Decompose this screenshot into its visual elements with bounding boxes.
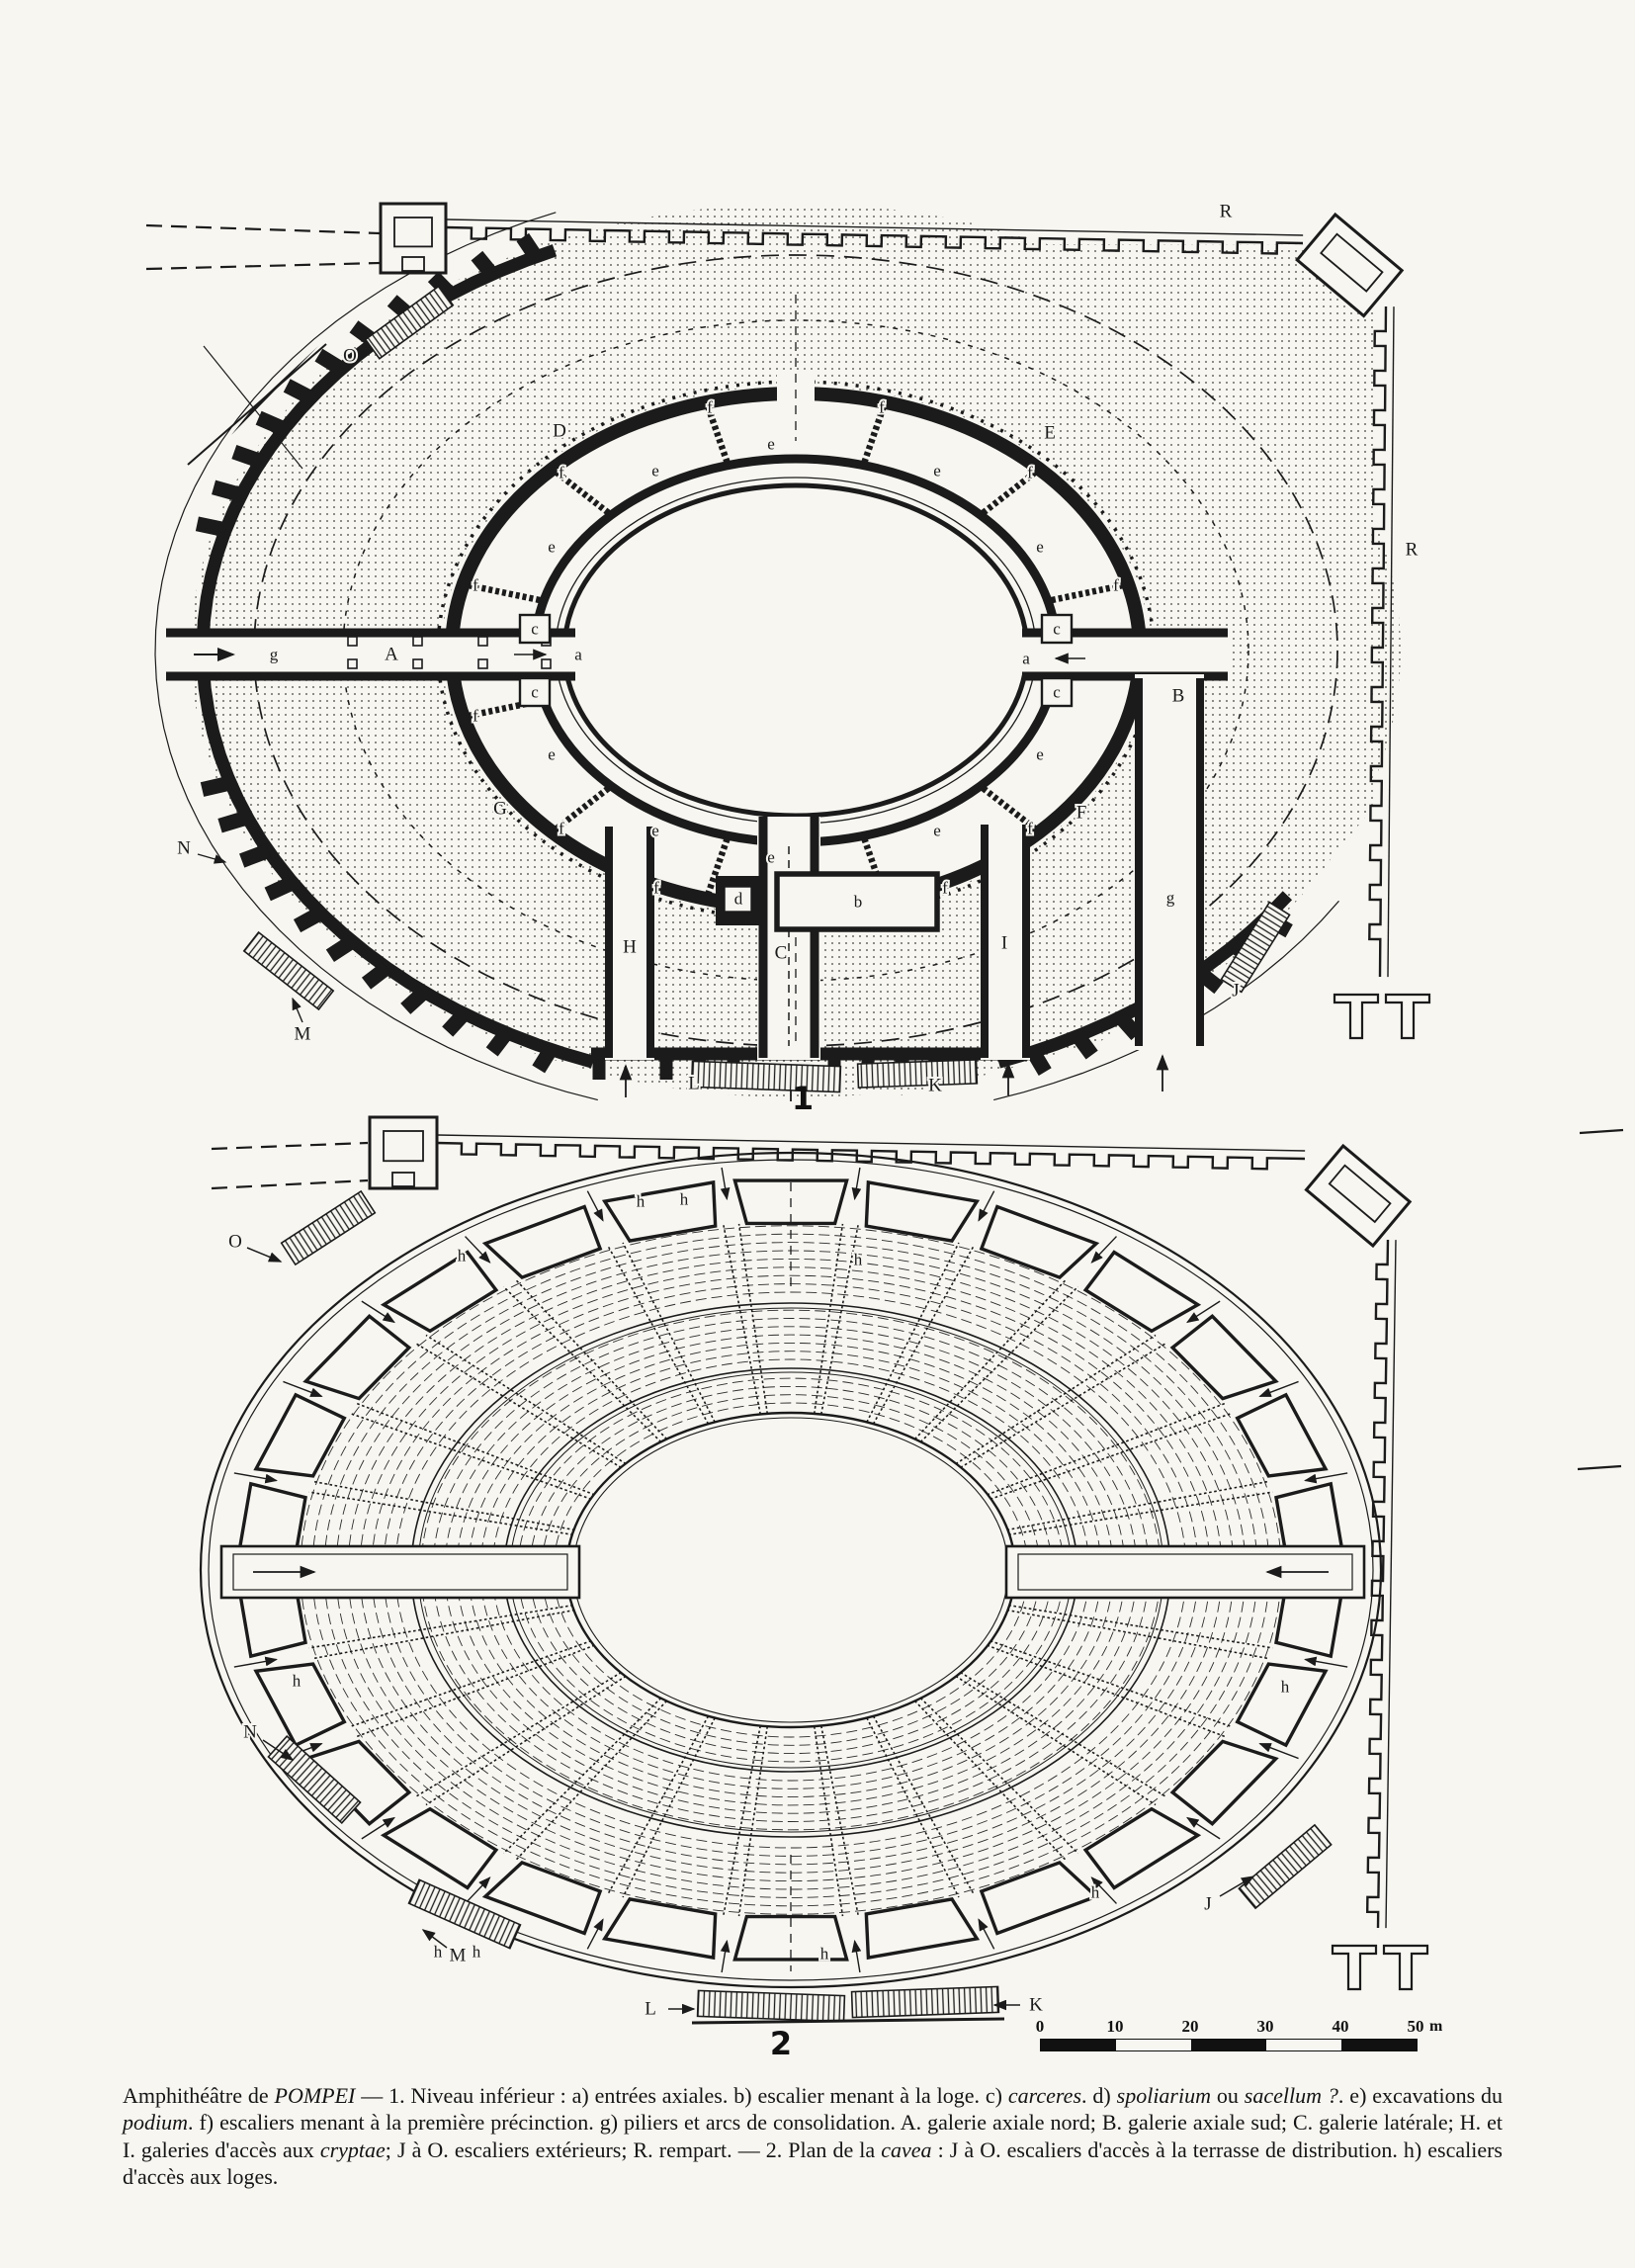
scale-tick: 50 bbox=[1408, 2017, 1424, 2037]
figure2-number: 2 bbox=[770, 2025, 792, 2062]
plan1-label-e: e bbox=[651, 822, 659, 840]
caption-segment: — 1. Niveau inférieur : a) entrées axial… bbox=[355, 2083, 1008, 2108]
caption-segment: carceres bbox=[1008, 2083, 1081, 2108]
plan1-label-f: f bbox=[1027, 820, 1033, 838]
plan1-label-O: O bbox=[343, 346, 357, 367]
plan2-label-O: O bbox=[228, 1232, 242, 1253]
plan1-label-e: e bbox=[548, 745, 556, 764]
plan1-label-K: K bbox=[928, 1076, 942, 1096]
caption-segment: ou bbox=[1211, 2083, 1245, 2108]
scale-bar: 0 10 20 30 40 50 m bbox=[1040, 2017, 1475, 2056]
plan1-label-e: e bbox=[933, 822, 941, 840]
plan1-label-A: A bbox=[385, 645, 398, 665]
plan1-label-B: B bbox=[1172, 686, 1185, 707]
caption: Amphithéâtre de POMPEI — 1. Niveau infér… bbox=[123, 2082, 1503, 2190]
plan1-label-e: e bbox=[651, 462, 659, 480]
plan2-label-h: h bbox=[473, 1943, 481, 1962]
plan1-label-f: f bbox=[1113, 576, 1119, 595]
scale-segment bbox=[1266, 2040, 1341, 2050]
plan1-label-L: L bbox=[688, 1074, 700, 1094]
caption-segment: . d) bbox=[1081, 2083, 1117, 2108]
plan2-label-h: h bbox=[637, 1192, 645, 1211]
plan1-label-J: J bbox=[1232, 981, 1239, 1002]
plan2-label-h: h bbox=[293, 1672, 301, 1691]
plan1-label-f: f bbox=[707, 398, 713, 417]
plan1-label-E: E bbox=[1044, 423, 1056, 444]
scale-tick: 10 bbox=[1107, 2017, 1124, 2037]
scale-bar-segments bbox=[1040, 2039, 1418, 2051]
plan2-label-K: K bbox=[1029, 1995, 1043, 2016]
plan1-label-f: f bbox=[473, 576, 478, 595]
plan1-label-f: f bbox=[559, 464, 564, 482]
plan2-label-h: h bbox=[434, 1943, 443, 1962]
plan1-label-f: f bbox=[473, 707, 478, 726]
plan2-label-J: J bbox=[1204, 1894, 1211, 1915]
caption-segment: POMPEI bbox=[275, 2083, 356, 2108]
scale-unit: m bbox=[1429, 2018, 1442, 2036]
scale-tick: 30 bbox=[1257, 2017, 1274, 2037]
plan1-label-g: g bbox=[1166, 889, 1175, 908]
plan1-label-g: g bbox=[270, 646, 279, 664]
caption-segment: cryptae bbox=[320, 2137, 386, 2162]
caption-segment: . e) excavations du bbox=[1338, 2083, 1503, 2108]
plan2-label-h: h bbox=[680, 1190, 689, 1209]
plan1-label-c: c bbox=[531, 620, 539, 639]
figure2-cavea-plan: hhhhhhhhhhONMLKJ bbox=[201, 1117, 1427, 2023]
plan1-label-f: f bbox=[559, 820, 564, 838]
plan1-label-F: F bbox=[1076, 803, 1087, 824]
plan1-label-f: f bbox=[879, 398, 885, 417]
plan1-label-e: e bbox=[933, 462, 941, 480]
plan1-label-f: f bbox=[1027, 464, 1033, 482]
plan1-label-H: H bbox=[623, 937, 637, 958]
plan1-label-M: M bbox=[295, 1024, 311, 1045]
plan2-label-M: M bbox=[450, 1946, 467, 1966]
caption-segment: sacellum ? bbox=[1245, 2083, 1338, 2108]
plan2-label-h: h bbox=[1091, 1883, 1100, 1902]
plan2-label-h: h bbox=[458, 1247, 467, 1265]
figure1-number: 1 bbox=[792, 1080, 814, 1117]
plan2-label-N: N bbox=[243, 1722, 257, 1743]
plan2-label-h: h bbox=[1281, 1678, 1290, 1697]
plan1-label-e: e bbox=[1036, 745, 1044, 764]
plate-page: Planche XXIII RRONMLKJHCIABDEGFggaabdccc… bbox=[0, 0, 1635, 2268]
plan1-label-b: b bbox=[854, 893, 863, 912]
plan1-label-f: f bbox=[653, 879, 659, 898]
plan1-label-R: R bbox=[1220, 202, 1233, 222]
plan1-label-d: d bbox=[734, 890, 743, 909]
caption-segment: spoliarium bbox=[1117, 2083, 1211, 2108]
caption-segment: cavea bbox=[881, 2137, 931, 2162]
plan2-label-h: h bbox=[820, 1945, 829, 1963]
scale-segment bbox=[1191, 2040, 1266, 2050]
scale-segment bbox=[1041, 2040, 1116, 2050]
plan1-label-D: D bbox=[553, 421, 566, 442]
caption-segment: podium bbox=[123, 2110, 188, 2135]
plan2-label-h: h bbox=[854, 1251, 863, 1269]
plan1-label-e: e bbox=[767, 848, 775, 867]
plan1-label-c: c bbox=[531, 683, 539, 702]
scale-segment bbox=[1116, 2040, 1191, 2050]
plan1-label-e: e bbox=[548, 538, 556, 557]
scale-tick: 0 bbox=[1036, 2017, 1045, 2037]
plan1-label-e: e bbox=[767, 435, 775, 454]
plan1-label-c: c bbox=[1053, 683, 1061, 702]
amphitheatre-plans-svg: RRONMLKJHCIABDEGFggaabdcccceeeeeeeeeefff… bbox=[0, 0, 1635, 2268]
plan1-label-N: N bbox=[177, 838, 191, 859]
plan1-label-C: C bbox=[775, 943, 788, 964]
scale-tick: 20 bbox=[1182, 2017, 1199, 2037]
plan1-label-I: I bbox=[1001, 933, 1007, 954]
plan1-label-a: a bbox=[1022, 650, 1030, 668]
figure1-lower-level-plan: RRONMLKJHCIABDEGFggaabdcccceeeeeeeeeefff… bbox=[89, 138, 1582, 1117]
plan1-label-G: G bbox=[493, 799, 507, 820]
plan1-label-e: e bbox=[1036, 538, 1044, 557]
plan1-label-R: R bbox=[1406, 540, 1419, 561]
caption-segment: ; J à O. escaliers extérieurs; R. rempar… bbox=[386, 2137, 881, 2162]
plan1-label-f: f bbox=[942, 879, 948, 898]
scale-tick: 40 bbox=[1333, 2017, 1349, 2037]
scale-segment bbox=[1341, 2040, 1417, 2050]
caption-segment: Amphithéâtre de bbox=[123, 2083, 275, 2108]
plan1-label-c: c bbox=[1053, 620, 1061, 639]
plan2-label-L: L bbox=[645, 1999, 656, 2020]
plan1-label-a: a bbox=[574, 646, 582, 664]
